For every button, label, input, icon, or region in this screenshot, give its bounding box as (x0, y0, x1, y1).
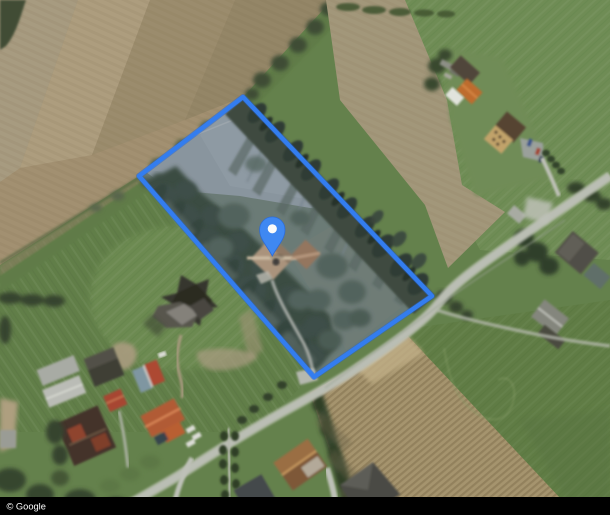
svg-text:© Google: © Google (7, 502, 46, 512)
